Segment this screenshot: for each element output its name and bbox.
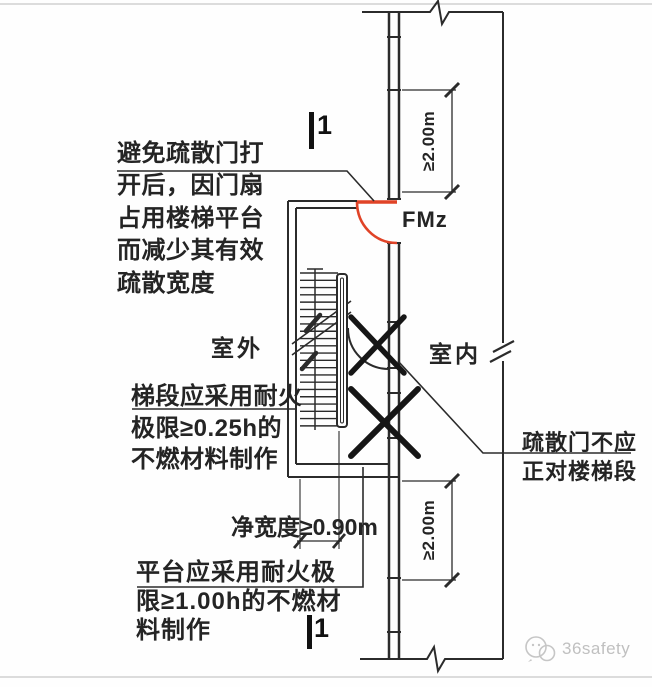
top-wall-line [362,1,503,24]
dimension-label-top: ≥2.00m [419,95,439,187]
annotation-stair-flight: 梯段应采用耐火 极限≥0.25h的 不燃材料制作 [131,381,311,476]
right-boundary-line [490,12,514,659]
dimension-label-bottom: ≥2.00m [419,484,439,576]
wechat-logo-icon [523,634,557,664]
annotation-door-swing: 避免疏散门打 开后，因门扇 占用楼梯平台 而减少其有效 疏散宽度 [117,138,277,300]
annotation-platform: 平台应采用耐火极 限≥1.00h的不燃材 料制作 [136,559,366,645]
annotation-clear-width: 净宽度≥0.90m [231,512,378,543]
label-indoor: 室内 [429,339,481,370]
handrail [337,274,347,427]
section-number-top: 1 [317,110,332,141]
bottom-wall-line [360,647,503,671]
crossed-door-upper [348,317,404,373]
watermark-text: 36safety [562,639,630,659]
annotation-door-facing: 疏散门不应 正对楼梯段 [522,429,637,486]
label-fire-door-tag: FMz [402,205,448,235]
fire-door-symbol [357,202,397,243]
section-number-bottom: 1 [314,613,329,644]
watermark: 36safety [523,634,630,664]
main-wall [389,12,399,659]
label-outdoor: 室外 [211,333,263,364]
crossed-door-lower [351,389,418,456]
fire-stair-diagram: 避免疏散门打 开后，因门扇 占用楼梯平台 而减少其有效 疏散宽度 梯段应采用耐火… [0,0,652,687]
